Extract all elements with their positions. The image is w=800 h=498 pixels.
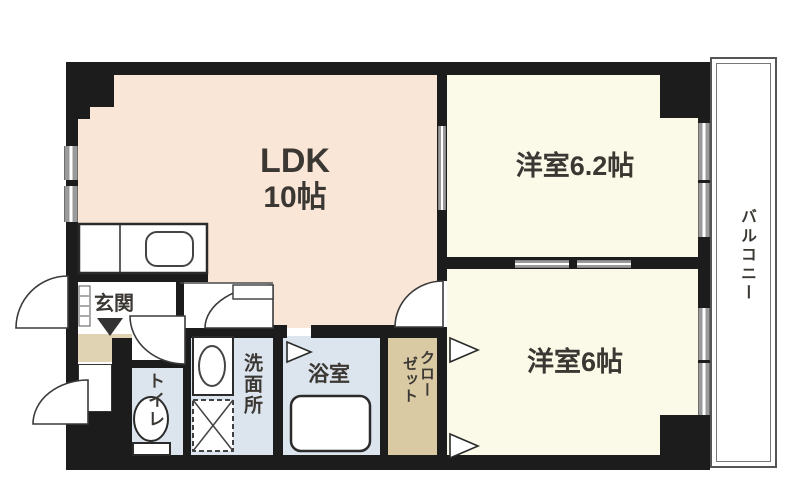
balcony-label: バルコニー <box>734 208 758 303</box>
ldk-name: LDK <box>195 142 395 181</box>
entrance-inner-door-arc <box>130 316 185 364</box>
entrance-arrow-icon <box>97 318 123 336</box>
bedroom2-label: 洋室6帖 <box>453 347 697 378</box>
floorplan-canvas: LDK 10帖 洋室6.2帖 洋室6帖 玄関 浴室 洗面所 トイレ クロー ゼッ… <box>0 0 800 498</box>
washroom-label: 洗面所 <box>238 353 265 416</box>
service-door-arc <box>33 380 88 424</box>
bathroom-label: 浴室 <box>308 358 350 388</box>
fixtures-overlay <box>0 0 800 498</box>
ldk-label: LDK 10帖 <box>195 142 395 216</box>
bedroom2-door-triangle-lower <box>450 434 478 458</box>
toilet-label: トイレ <box>142 372 167 429</box>
kitchen-sink-icon <box>146 232 193 266</box>
toilet-tank <box>133 443 170 455</box>
closet-label-left-column: ゼット <box>399 356 420 404</box>
ldk-size: 10帖 <box>195 181 395 216</box>
bedroom2-door-arc <box>395 281 443 327</box>
hall-door-leaf <box>233 285 273 299</box>
entrance-label: 玄関 <box>94 287 134 316</box>
bedroom1-label: 洋室6.2帖 <box>453 151 697 182</box>
washbasin-icon <box>199 346 225 386</box>
entrance-door-arc <box>16 276 68 328</box>
bathtub-icon <box>291 396 370 451</box>
